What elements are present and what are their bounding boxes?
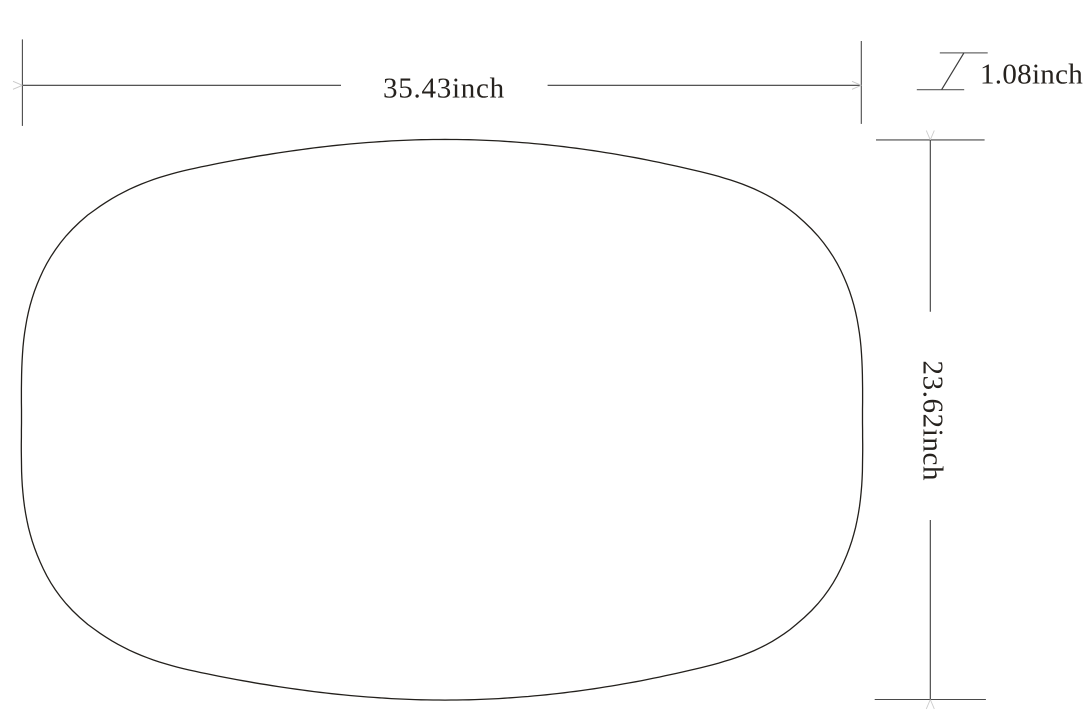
svg-text:1.08inch: 1.08inch xyxy=(980,59,1083,91)
svg-text:35.43inch: 35.43inch xyxy=(383,72,505,104)
svg-text:23.62inch: 23.62inch xyxy=(916,361,948,482)
